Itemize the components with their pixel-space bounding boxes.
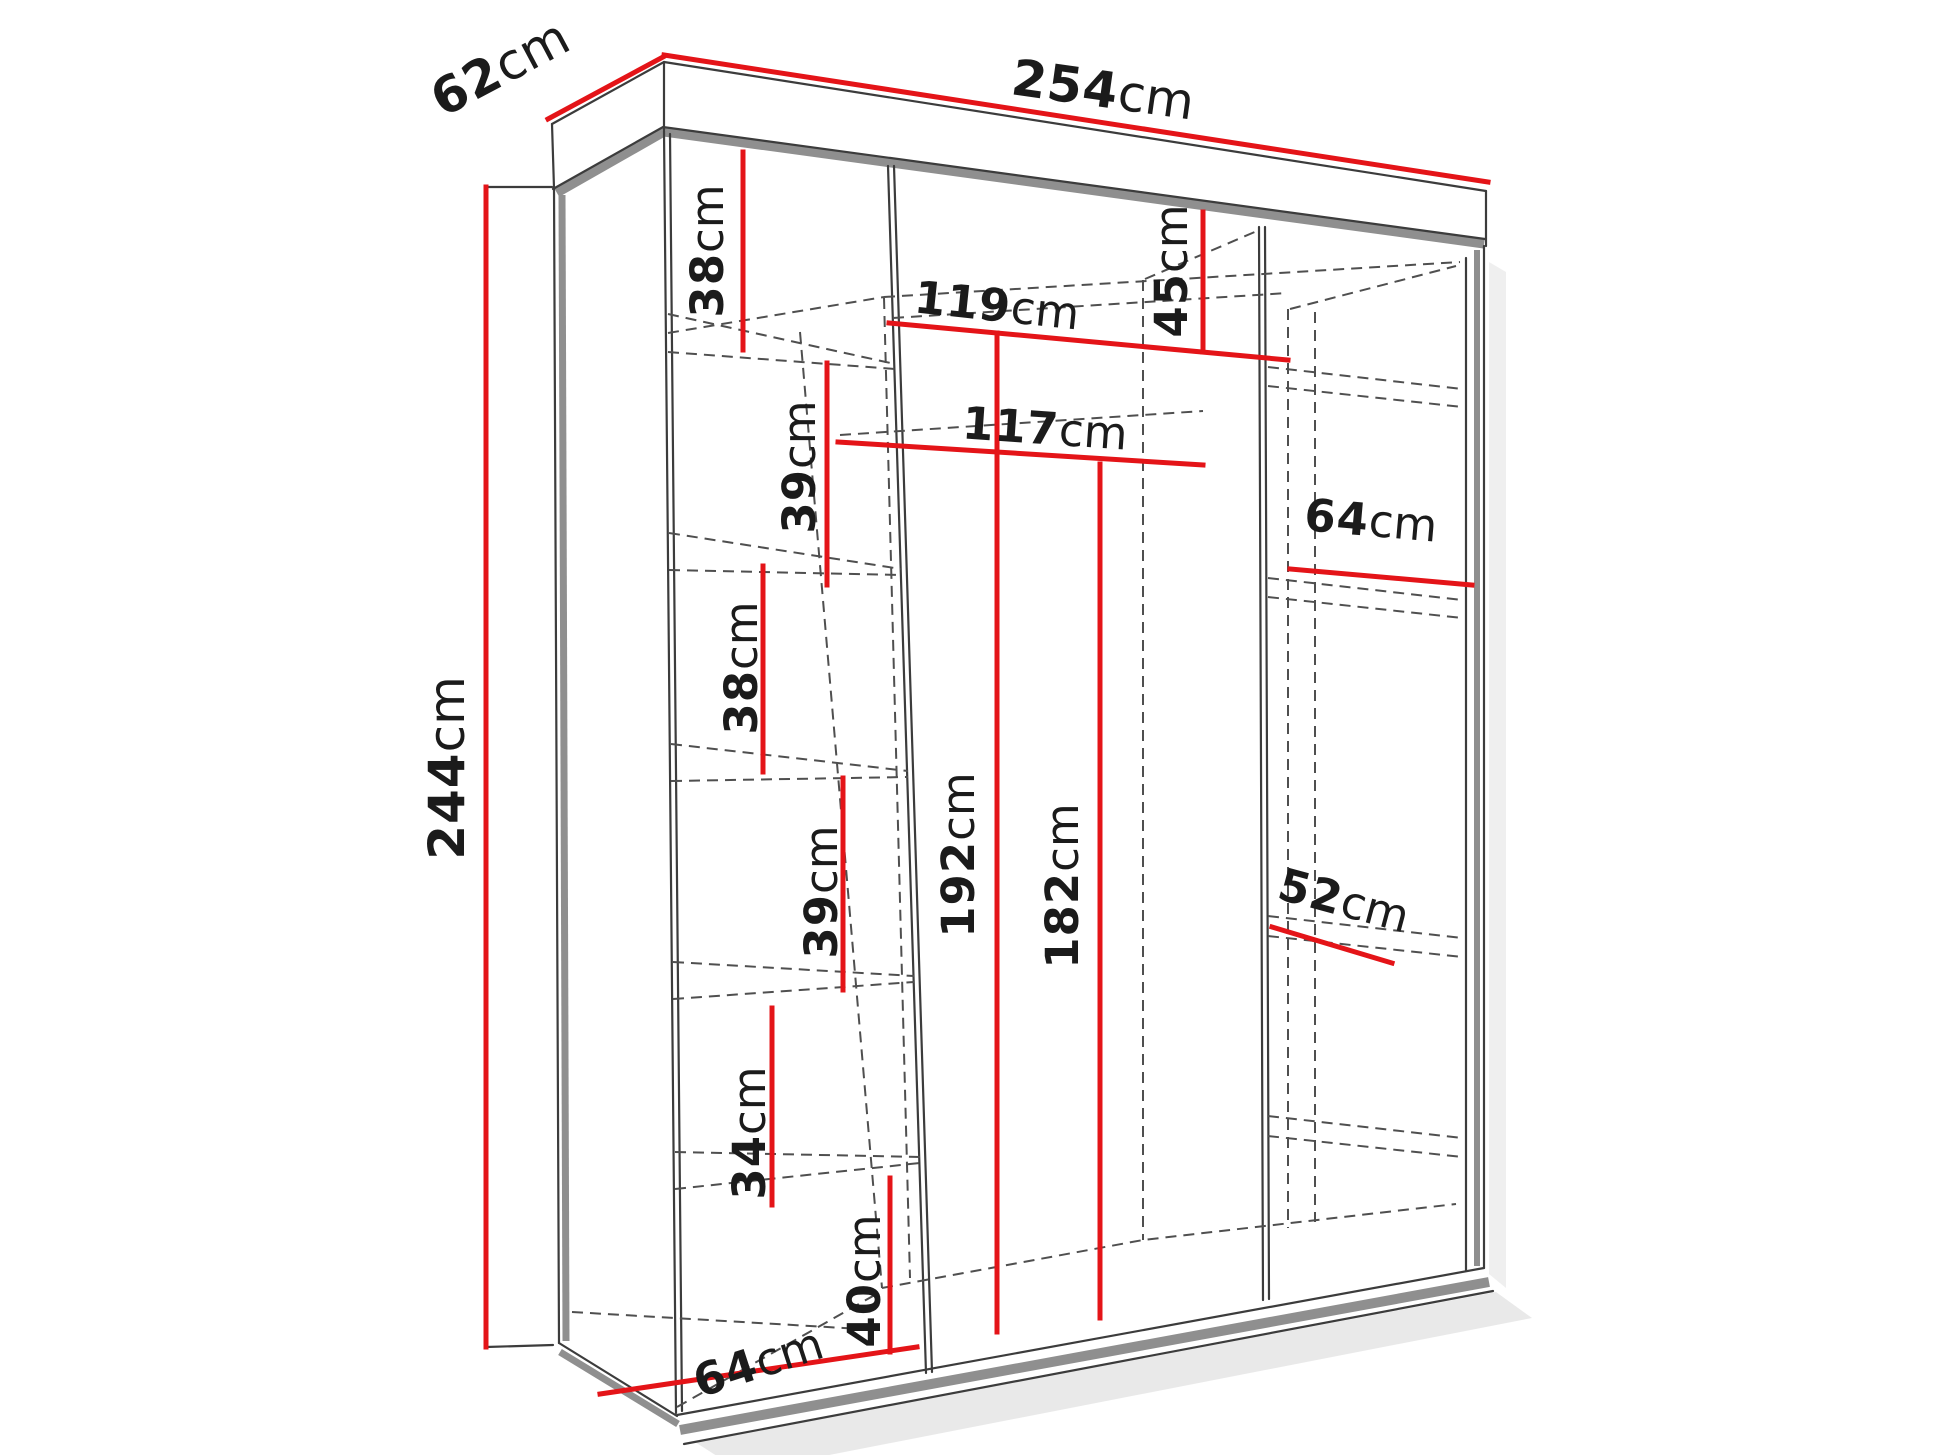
wardrobe-diagram: 62cm 254cm 244cm 38cm 39cm 38cm 39cm 34c… bbox=[0, 0, 1940, 1455]
dim-label-shelf-38b: 38cm bbox=[715, 601, 768, 734]
dim-line-width-119 bbox=[889, 323, 1288, 360]
dim-line-depth-62 bbox=[548, 57, 663, 119]
wardrobe-dividers bbox=[888, 166, 1269, 1373]
dim-label-right-52: 52cm bbox=[1273, 857, 1415, 943]
dim-label-base-64: 64cm bbox=[686, 1316, 829, 1408]
dimension-lines bbox=[486, 55, 1488, 1394]
dim-label-height-182: 182cm bbox=[1036, 803, 1089, 969]
dim-label-shelf-40: 40cm bbox=[838, 1214, 891, 1347]
dim-label-height-244: 244cm bbox=[418, 676, 476, 860]
wardrobe-diagram-page: 62cm 254cm 244cm 38cm 39cm 38cm 39cm 34c… bbox=[0, 0, 1940, 1455]
dim-line-right-64 bbox=[1290, 569, 1472, 585]
dimension-extension-lines bbox=[486, 187, 553, 1347]
dim-label-shelf-34: 34cm bbox=[723, 1066, 776, 1199]
dim-label-depth-62: 62cm bbox=[421, 8, 579, 129]
dim-label-shelf-39b: 39cm bbox=[795, 825, 848, 958]
dim-label-height-192: 192cm bbox=[932, 772, 985, 938]
dim-label-height-45: 45cm bbox=[1145, 204, 1198, 337]
dim-label-shelf-38a: 38cm bbox=[681, 184, 734, 317]
dim-label-shelf-39a: 39cm bbox=[773, 400, 826, 533]
dim-label-width-254: 254cm bbox=[1008, 49, 1198, 132]
dim-label-right-64: 64cm bbox=[1302, 488, 1439, 552]
